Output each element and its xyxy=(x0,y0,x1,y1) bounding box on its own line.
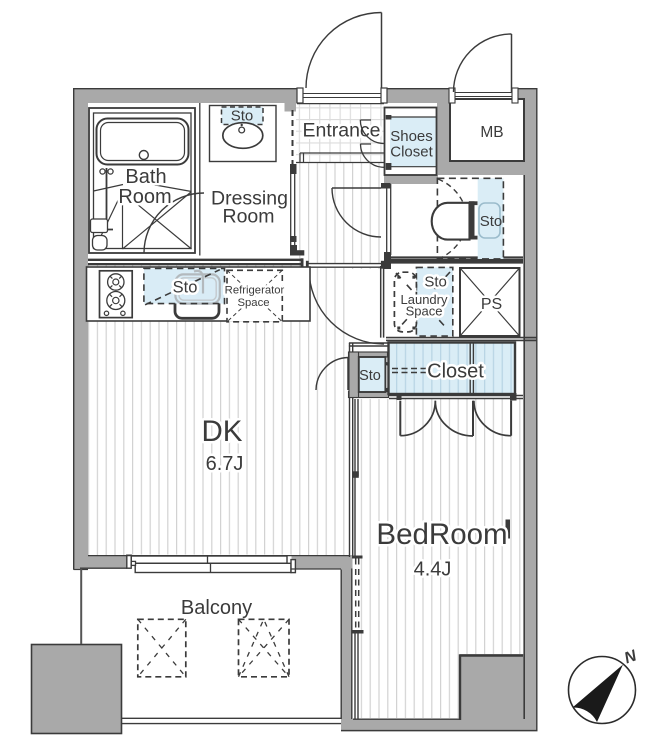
svg-text:Sto: Sto xyxy=(480,213,503,230)
svg-text:4.4J: 4.4J xyxy=(414,559,452,581)
svg-text:Sto: Sto xyxy=(359,368,381,384)
svg-text:Room: Room xyxy=(118,186,171,208)
svg-text:Sto: Sto xyxy=(424,274,447,291)
svg-text:Bath: Bath xyxy=(125,166,166,188)
svg-text:6.7J: 6.7J xyxy=(206,453,244,475)
svg-text:Closet: Closet xyxy=(390,144,433,161)
svg-text:Space: Space xyxy=(406,304,443,319)
svg-text:Room: Room xyxy=(222,206,274,228)
svg-text:MB: MB xyxy=(480,124,503,141)
svg-text:Closet: Closet xyxy=(427,361,484,383)
svg-text:Refrigerator: Refrigerator xyxy=(225,285,285,297)
svg-text:Shoes: Shoes xyxy=(390,128,433,145)
svg-text:BedRoom: BedRoom xyxy=(376,518,507,551)
svg-text:Sto: Sto xyxy=(173,279,198,297)
svg-text:DK: DK xyxy=(202,415,243,448)
svg-text:PS: PS xyxy=(481,296,502,313)
svg-text:Space: Space xyxy=(237,297,269,309)
svg-text:Balcony: Balcony xyxy=(181,597,252,619)
